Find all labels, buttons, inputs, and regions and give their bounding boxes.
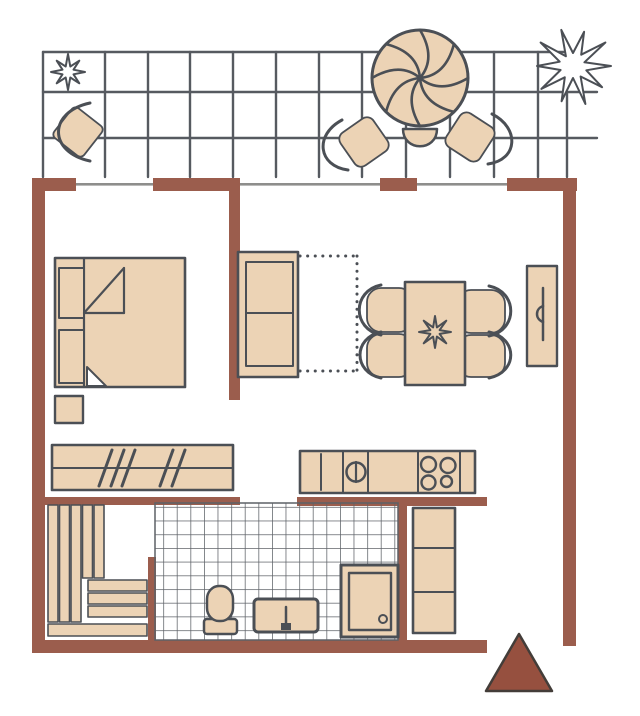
window-strip-2 <box>240 183 380 186</box>
slatted-benches <box>48 505 147 636</box>
shower-tray <box>341 565 398 637</box>
exterior-wall-bottom <box>32 640 487 653</box>
basin-drain <box>281 623 291 630</box>
cabinet-body <box>413 508 455 633</box>
tall-cabinet <box>413 508 455 633</box>
nightstand <box>55 396 83 423</box>
exterior-wall-top-3 <box>380 178 417 191</box>
parasol-chair-middle <box>403 129 437 146</box>
parasol-chair-left <box>323 114 392 170</box>
double-bed <box>55 258 185 387</box>
sideboard <box>527 266 557 366</box>
window-strip-3 <box>417 183 507 186</box>
potted-plant-small <box>51 54 85 90</box>
bench-plank <box>48 624 147 636</box>
bench-plank <box>88 593 147 604</box>
direction-triangle <box>486 634 552 691</box>
bench-plank <box>88 580 147 591</box>
exterior-wall-top-2 <box>153 178 240 191</box>
terrace-chair <box>51 103 104 161</box>
bench-plank <box>83 505 93 578</box>
toilet-bowl <box>207 586 233 621</box>
floor-plan-page <box>0 0 640 716</box>
shower-inner <box>349 573 391 630</box>
pillow-bottom <box>59 330 84 383</box>
wardrobe-with-hangers <box>52 445 233 490</box>
exterior-wall-right <box>563 178 576 646</box>
window-strip-1 <box>76 183 153 186</box>
sofa-bed <box>238 252 298 377</box>
terrace-tile-grid <box>43 52 597 177</box>
bench-plank <box>60 505 70 622</box>
chair-seat <box>336 114 392 170</box>
kitchen-counter <box>300 451 475 493</box>
bench-plank <box>94 505 104 578</box>
toilet <box>204 586 237 634</box>
pillow-top <box>59 268 84 318</box>
washbasin <box>254 599 318 632</box>
bench-plank <box>48 505 58 622</box>
bench-plank <box>88 606 147 617</box>
dining-table <box>405 282 465 385</box>
bench-plank <box>71 505 81 622</box>
parasol-table <box>372 30 468 126</box>
dining-set <box>359 282 511 385</box>
sofa-extension-outline <box>300 256 357 371</box>
floor-plan <box>0 0 640 716</box>
exterior-wall-left <box>32 178 45 653</box>
